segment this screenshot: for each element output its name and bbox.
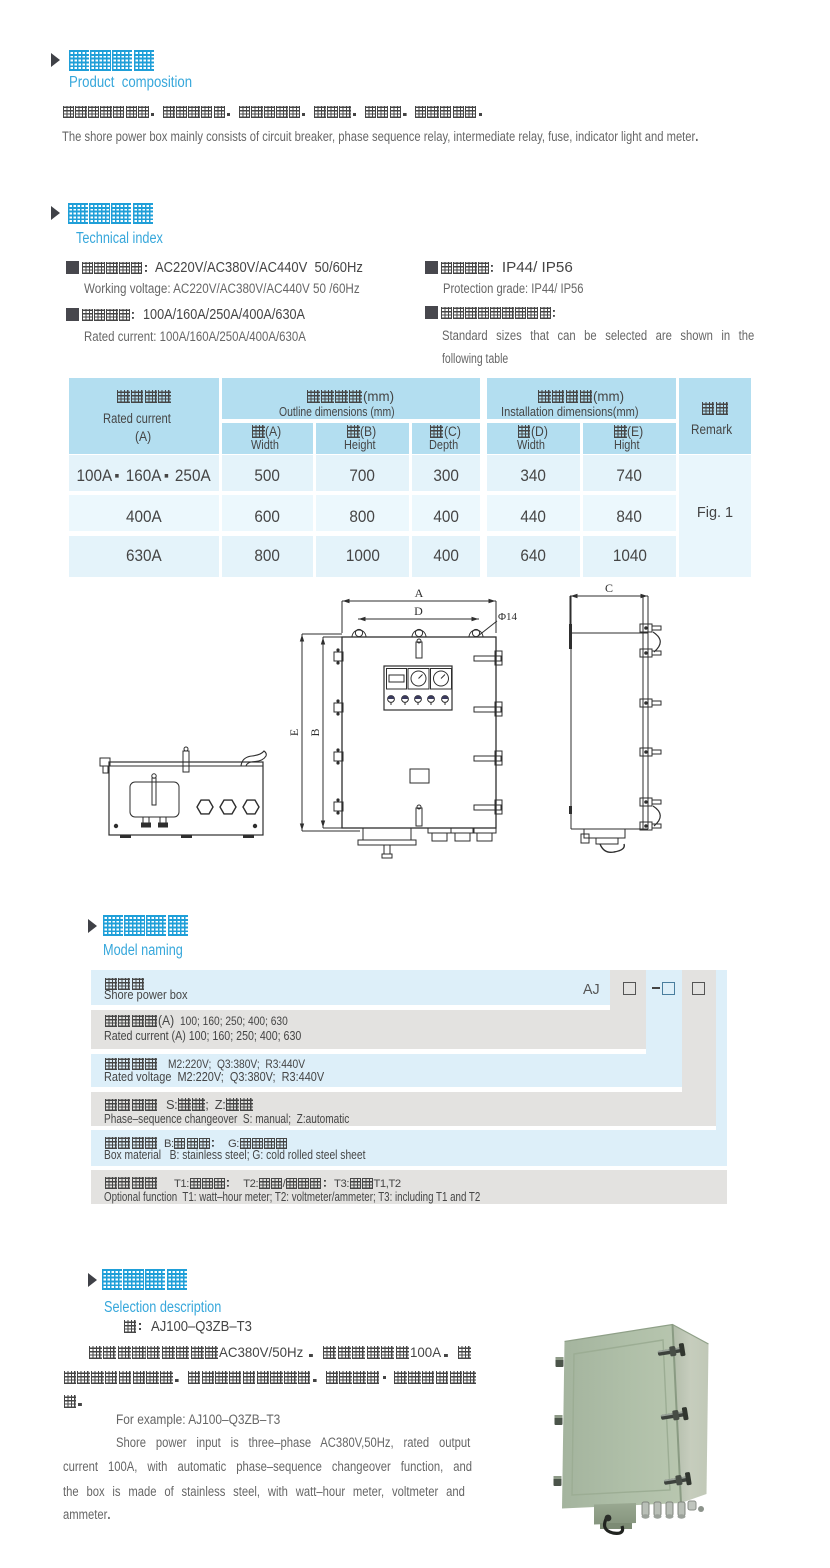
svg-text:C: C [605,581,613,595]
svg-text:Φ14: Φ14 [498,611,518,623]
svg-text:A: A [415,586,424,600]
svg-text:D: D [414,604,423,618]
svg-text:E: E [287,729,301,736]
svg-text:B: B [308,728,322,736]
